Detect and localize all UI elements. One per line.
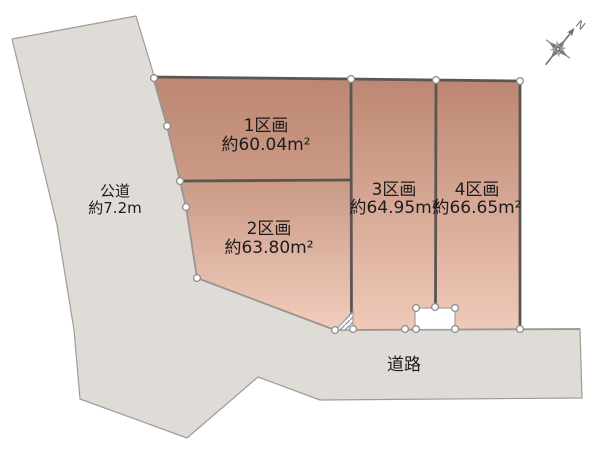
plot-4-name-label: 4区画	[455, 180, 500, 200]
vertex-marker	[433, 77, 440, 84]
vertex-marker	[452, 305, 459, 312]
boundary-notch	[415, 308, 455, 330]
public-road-label: 公道	[100, 182, 130, 200]
plot-3-area-label: 約64.95m²	[349, 198, 438, 218]
vertex-marker	[194, 275, 201, 282]
vertex-marker	[413, 326, 420, 333]
vertex-marker	[402, 326, 409, 333]
vertex-marker	[517, 78, 524, 85]
vertex-marker	[348, 76, 355, 83]
land-plot-diagram: 1区画 約60.04m² 2区画 約63.80m² 3区画 約64.95m² 4…	[0, 0, 600, 450]
plot-1-name-label: 1区画	[244, 116, 289, 136]
vertex-marker	[350, 326, 357, 333]
vertex-marker	[183, 204, 190, 211]
plot-2-area-label: 約63.80m²	[224, 238, 313, 258]
plot-4-area-label: 約66.65m²	[432, 198, 521, 218]
vertex-marker	[432, 304, 439, 311]
vertex-marker	[413, 305, 420, 312]
plot-3-name-label: 3区画	[372, 180, 417, 200]
public-road-width-label: 約7.2m	[88, 199, 141, 217]
vertex-marker	[177, 178, 184, 185]
vertex-marker	[151, 75, 158, 82]
vertex-marker	[332, 327, 339, 334]
front-road-label: 道路	[387, 355, 421, 375]
plot-layout-canvas: 1区画 約60.04m² 2区画 約63.80m² 3区画 約64.95m² 4…	[0, 0, 600, 450]
vertex-marker	[517, 326, 524, 333]
plot-2-name-label: 2区画	[247, 219, 292, 239]
vertex-marker	[452, 326, 459, 333]
plot-1-area-label: 約60.04m²	[221, 135, 310, 155]
vertex-marker	[164, 123, 171, 130]
